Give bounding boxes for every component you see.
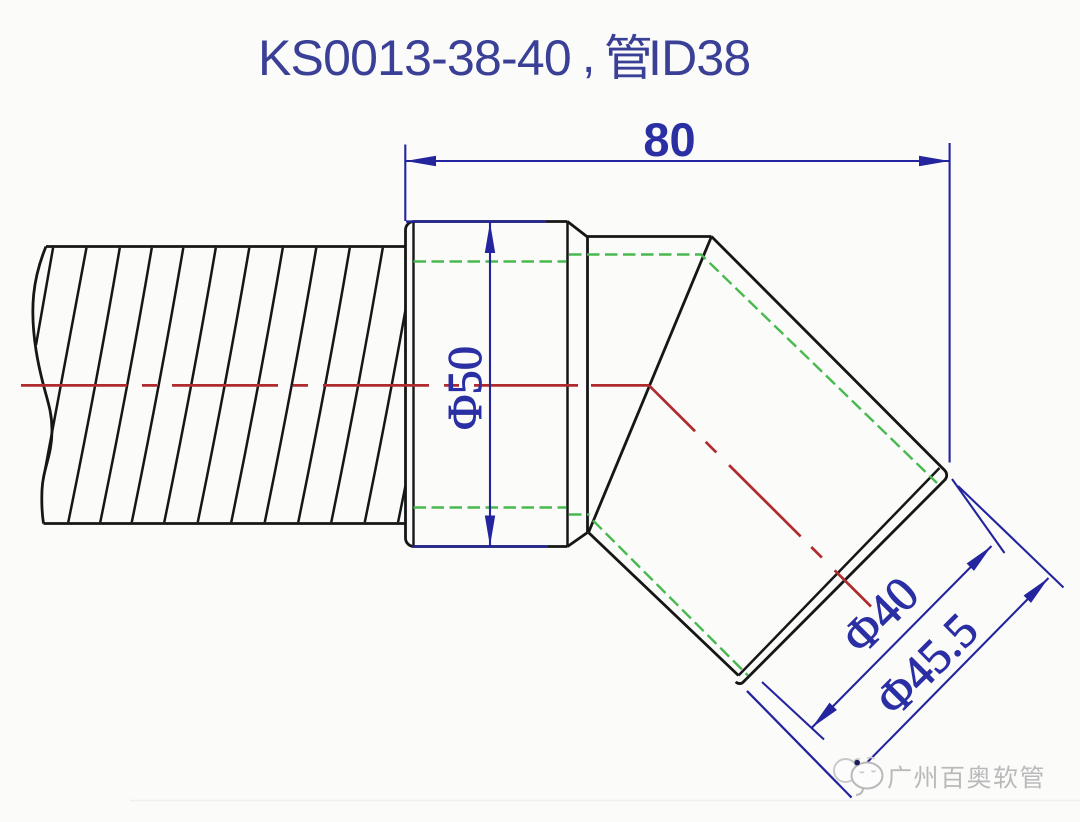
svg-text:,: , [582, 30, 595, 83]
svg-text:ID38: ID38 [648, 30, 750, 86]
svg-text:KS0013-38-40: KS0013-38-40 [258, 30, 571, 86]
svg-text:80: 80 [643, 113, 695, 166]
svg-text:Φ50: Φ50 [439, 346, 492, 430]
